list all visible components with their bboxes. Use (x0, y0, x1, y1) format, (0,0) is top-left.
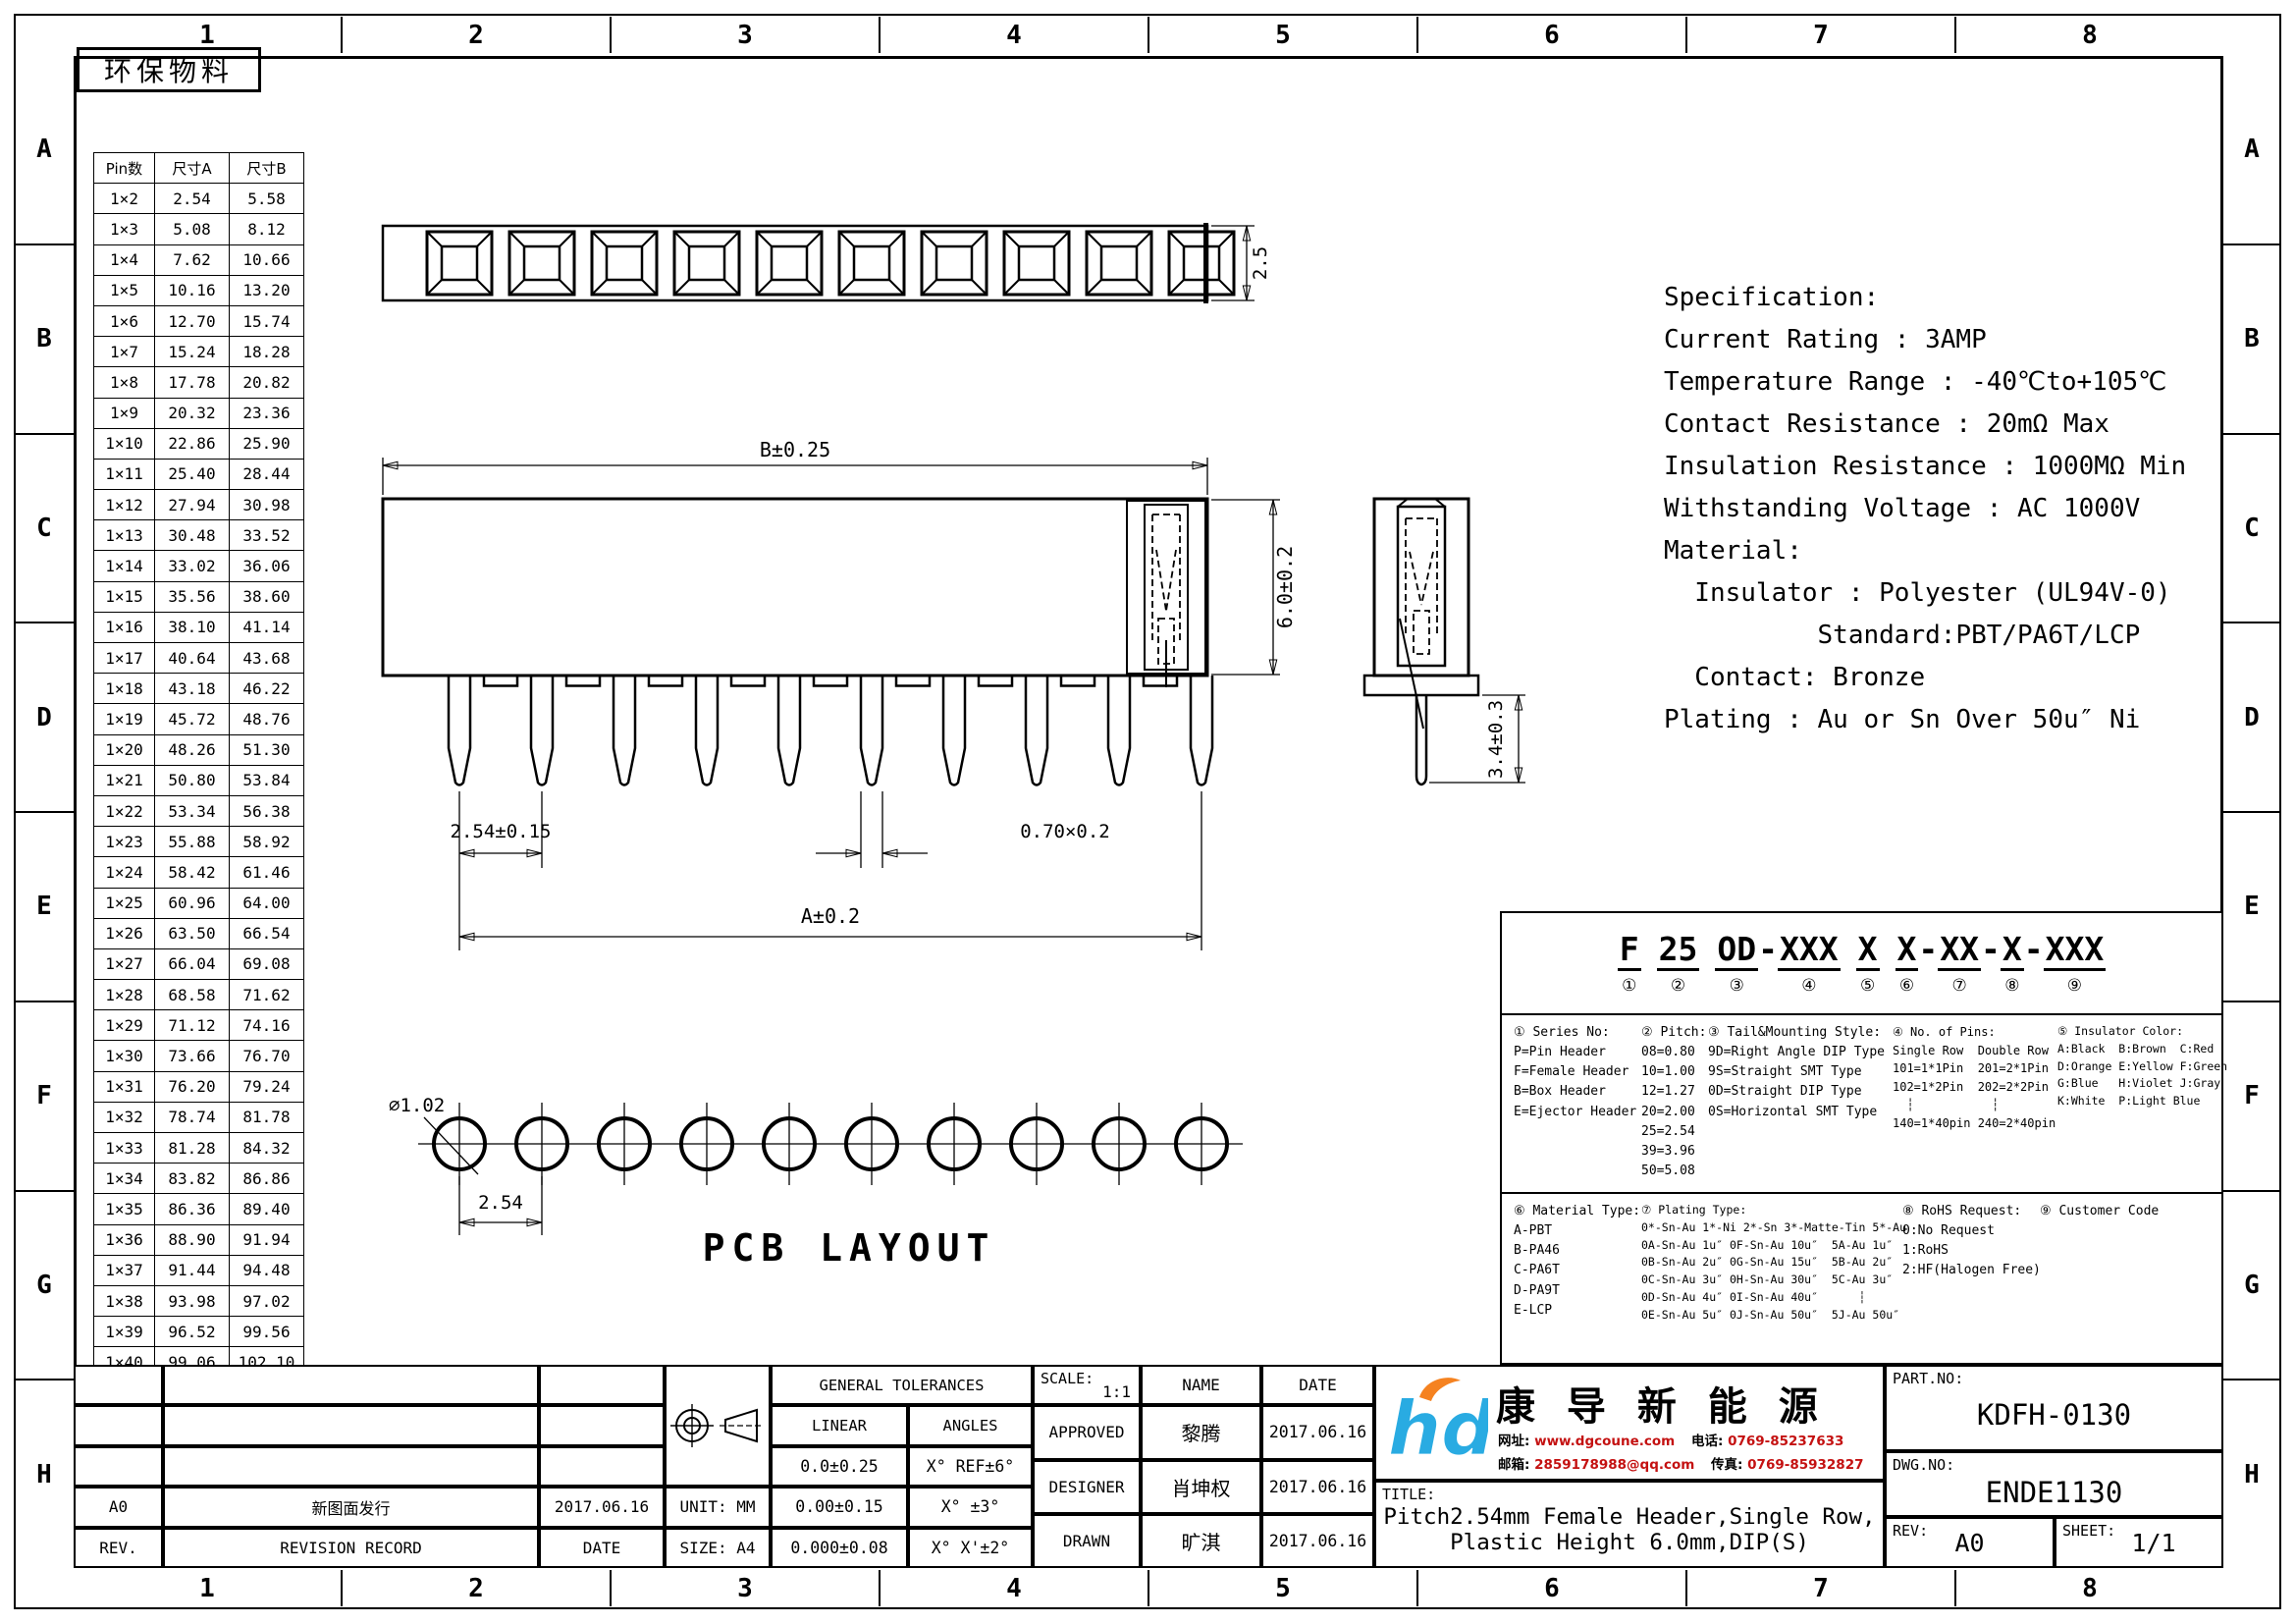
part-no-label: PART.NO: (1893, 1370, 1963, 1387)
pin-table-cell: 27.94 (155, 490, 230, 520)
pin-table-cell: 1×5 (94, 275, 155, 305)
pin-table-cell: 10.66 (230, 244, 304, 275)
pin-table-cell: 15.24 (155, 337, 230, 367)
part-code-segment-text: X (1856, 931, 1880, 971)
pin-table-row: 1×1330.4833.52 (94, 520, 304, 551)
company-logo-icon: hd (1386, 1372, 1488, 1476)
pin-table-cell: 36.06 (230, 551, 304, 581)
pin-table-row: 1×3176.2079.24 (94, 1071, 304, 1102)
grid-col-label: 2 (341, 17, 610, 53)
size-cell: SIZE: A4 (665, 1528, 771, 1568)
linear-header: LINEAR (771, 1405, 908, 1445)
email-label: 邮箱: (1498, 1457, 1529, 1473)
pin-table-cell: 35.56 (155, 581, 230, 612)
pin-table-cell: 93.98 (155, 1285, 230, 1316)
projection-symbol-cell (665, 1365, 771, 1487)
spec-line: Contact: Bronze (1664, 657, 2186, 699)
website-label: 网址: (1498, 1434, 1529, 1449)
fax-label: 传真: (1711, 1457, 1742, 1473)
tolerance-angle-value: X° REF±6° (908, 1446, 1033, 1487)
rev-label: REV: (1893, 1522, 1928, 1540)
pin-table-row: 1×920.3223.36 (94, 398, 304, 428)
pin-table-cell: 1×11 (94, 459, 155, 489)
pin-table-cell: 71.12 (155, 1010, 230, 1041)
pin-table-row: 1×1638.1041.14 (94, 612, 304, 642)
part-code-segment-text: X (1896, 931, 1919, 971)
spec-line: Insulator : Polyester (UL94V-0) (1664, 572, 2186, 615)
part-code-segment-text: 25 (1657, 931, 1700, 971)
pin-table-cell: 1×26 (94, 918, 155, 948)
pin-table-cell: 81.78 (230, 1102, 304, 1132)
pin-table-cell: 8.12 (230, 214, 304, 244)
grid-band-left: ABCDEFGH (15, 56, 74, 1568)
company-block: hd 康 导 新 能 源 网址: www.dgcoune.com 电话: 076… (1374, 1365, 1885, 1481)
part-code-segment-text: XXX (2044, 931, 2107, 971)
pin-table-cell: 81.28 (155, 1133, 230, 1164)
pin-table-row: 1×715.2418.28 (94, 337, 304, 367)
decode-divider-1 (1502, 1013, 2221, 1015)
revision-empty-cell (163, 1446, 539, 1487)
part-code-segment-index: ② (1671, 976, 1685, 996)
part-code-segment: XXX⑨ (2044, 931, 2107, 996)
pin-table-cell: 43.68 (230, 643, 304, 674)
pin-table-row: 1×1227.9430.98 (94, 490, 304, 520)
pin-table-cell: 58.42 (155, 857, 230, 888)
pin-table-cell: 33.02 (155, 551, 230, 581)
part-code-segment-text: F (1618, 931, 1641, 971)
pin-table-cell: 12.70 (155, 305, 230, 336)
pin-table-row: 1×3688.9091.94 (94, 1224, 304, 1255)
pin-table-cell: 45.72 (155, 704, 230, 734)
spec-line: Withstanding Voltage : AC 1000V (1664, 488, 2186, 530)
pin-table-cell: 20.32 (155, 398, 230, 428)
pin-table-cell: 1×18 (94, 674, 155, 704)
pin-table-cell: 1×25 (94, 888, 155, 918)
pin-table-cell: 56.38 (230, 795, 304, 826)
tolerance-linear-value: 0.00±0.15 (771, 1487, 908, 1527)
tolerance-linear-value: 0.0±0.25 (771, 1446, 908, 1487)
pin-table-cell: 50.80 (155, 765, 230, 795)
pin-table-cell: 1×37 (94, 1255, 155, 1285)
pin-table-cell: 30.98 (230, 490, 304, 520)
part-code-segment-text: X (2001, 931, 2024, 971)
revision-empty-cell (74, 1365, 163, 1405)
size-label: SIZE: A4 (667, 1530, 769, 1566)
pin-table-cell: 73.66 (155, 1041, 230, 1071)
part-code-segment-index: ④ (1801, 976, 1816, 996)
svg-text:hd: hd (1388, 1384, 1488, 1472)
revision-empty-cell (163, 1405, 539, 1445)
pin-table-row: 1×3278.7481.78 (94, 1102, 304, 1132)
scale-value: 1:1 (1102, 1382, 1131, 1401)
grid-row-label: A (15, 56, 74, 244)
part-code-separator: - (1918, 931, 1938, 968)
pin-table-cell: 30.48 (155, 520, 230, 551)
pin-table-cell: 28.44 (230, 459, 304, 489)
grid-row-label: G (15, 1190, 74, 1380)
pin-table-cell: 74.16 (230, 1010, 304, 1041)
grid-row-label: C (15, 433, 74, 623)
grid-col-label: 8 (1954, 1570, 2223, 1606)
specification-block: Specification:Current Rating : 3AMPTempe… (1664, 277, 2186, 741)
phone-label: 电话: (1691, 1434, 1723, 1449)
grid-row-label: F (15, 1001, 74, 1190)
spec-line: Current Rating : 3AMP (1664, 319, 2186, 361)
pin-table-row: 1×3791.4494.48 (94, 1255, 304, 1285)
spec-line: Standard:PBT/PA6T/LCP (1664, 615, 2186, 657)
pin-table-row: 1×1125.4028.44 (94, 459, 304, 489)
pin-table-cell: 1×21 (94, 765, 155, 795)
approval-role: APPROVED (1033, 1405, 1141, 1459)
pin-table-row: 1×3893.9897.02 (94, 1285, 304, 1316)
grid-row-label: E (2222, 811, 2281, 1001)
pin-table-cell: 1×20 (94, 734, 155, 765)
pin-table-cell: 88.90 (155, 1224, 230, 1255)
decode-section-pitch: ② Pitch: 08=0.80 10=1.00 12=1.27 20=2.00… (1641, 1023, 1706, 1181)
pin-table-cell: 40.64 (155, 643, 230, 674)
part-code-segment: X⑥ (1896, 931, 1919, 996)
pin-table-cell: 10.16 (155, 275, 230, 305)
pin-table-header-dim-b: 尺寸B (230, 153, 304, 184)
pin-table-cell: 17.78 (155, 367, 230, 398)
pin-table-cell: 64.00 (230, 888, 304, 918)
pin-table-cell: 1×3 (94, 214, 155, 244)
pin-table-row: 1×22.545.58 (94, 184, 304, 214)
pin-table-cell: 1×15 (94, 581, 155, 612)
pin-table-cell: 1×10 (94, 428, 155, 459)
part-number-decode-panel: F①25②OD③-XXX④X⑤X⑥-XX⑦-X⑧-XXX⑨ ① Series N… (1500, 911, 2223, 1365)
pin-table-cell: 63.50 (155, 918, 230, 948)
grid-row-label: B (2222, 244, 2281, 433)
part-code-segment-index: ⑨ (2067, 976, 2082, 996)
grid-col-label: 8 (1954, 17, 2223, 53)
pin-table-row: 1×1022.8625.90 (94, 428, 304, 459)
pin-table-row: 1×2766.0469.08 (94, 948, 304, 979)
pin-table-cell: 1×24 (94, 857, 155, 888)
grid-row-label: C (2222, 433, 2281, 623)
pin-table-row: 1×3996.5299.56 (94, 1317, 304, 1347)
angles-header: ANGLES (908, 1405, 1033, 1445)
part-code-segment: XXX④ (1778, 931, 1841, 996)
part-code-segment-index: ⑦ (1952, 976, 1967, 996)
revision-empty-cell (539, 1365, 665, 1405)
pin-table-cell: 38.60 (230, 581, 304, 612)
pin-table-row: 1×1740.6443.68 (94, 643, 304, 674)
decode-section-series: ① Series No: P=Pin Header F=Female Heade… (1514, 1023, 1636, 1122)
pin-table-header-row: Pin数 尺寸A 尺寸B (94, 153, 304, 184)
pin-table-cell: 25.40 (155, 459, 230, 489)
pin-table-cell: 1×30 (94, 1041, 155, 1071)
grid-row-label: D (2222, 622, 2281, 811)
pin-table-cell: 55.88 (155, 827, 230, 857)
pin-table-cell: 41.14 (230, 612, 304, 642)
decode-section-color: ⑤ Insulator Color: A:Black B:Brown C:Red… (2057, 1023, 2227, 1110)
pin-table-cell: 1×4 (94, 244, 155, 275)
grid-row-label: H (2222, 1379, 2281, 1568)
grid-band-bottom: 12345678 (74, 1570, 2223, 1606)
company-contact-line-1: 网址: www.dgcoune.com 电话: 0769-85237633 (1498, 1430, 1855, 1449)
sheet-label: SHEET: (2062, 1522, 2115, 1540)
pin-table-cell: 99.56 (230, 1317, 304, 1347)
pin-table-cell: 1×6 (94, 305, 155, 336)
pin-table-cell: 1×12 (94, 490, 155, 520)
drawing-title-line-2: Plastic Height 6.0mm,DIP(S) (1376, 1530, 1883, 1555)
pin-table-row: 1×1945.7248.76 (94, 704, 304, 734)
pin-table-cell: 38.10 (155, 612, 230, 642)
revision-empty-cell (539, 1446, 665, 1487)
rev-cell: REV: A0 (1885, 1517, 2055, 1568)
grid-band-top: 12345678 (74, 17, 2223, 53)
pin-table-row: 1×3586.3689.40 (94, 1194, 304, 1224)
decode-section-pins: ④ No. of Pins: Single Row Double Row 101… (1893, 1023, 2056, 1133)
approval-date: 2017.06.16 (1261, 1405, 1374, 1459)
pin-table-header-dim-a: 尺寸A (155, 153, 230, 184)
decode-section-rohs: ⑧ RoHS Request: 0:No Request 1:RoHS 2:HF… (1902, 1202, 2041, 1281)
pin-table-cell: 1×17 (94, 643, 155, 674)
part-code-segment-index: ⑧ (2004, 976, 2019, 996)
pin-table-cell: 48.76 (230, 704, 304, 734)
eco-material-stamp: 环保物料 (77, 47, 261, 92)
decode-section-tail: ③ Tail&Mounting Style: 9D=Right Angle DI… (1708, 1023, 1885, 1122)
tolerance-linear-value: 0.000±0.08 (771, 1528, 908, 1568)
pin-table-cell: 91.44 (155, 1255, 230, 1285)
name-header: NAME (1141, 1365, 1261, 1405)
grid-col-label: 4 (879, 1570, 1148, 1606)
pin-table-cell: 83.82 (155, 1164, 230, 1194)
drawing-title-block: TITLE: Pitch2.54mm Female Header,Single … (1374, 1481, 1885, 1568)
pin-table-cell: 1×29 (94, 1010, 155, 1041)
pin-table-cell: 91.94 (230, 1224, 304, 1255)
pin-table-cell: 68.58 (155, 980, 230, 1010)
pin-table-row: 1×1535.5638.60 (94, 581, 304, 612)
grid-col-label: 5 (1148, 1570, 1416, 1606)
title-label: TITLE: (1382, 1486, 1435, 1503)
revision-entry-cell: 2017.06.16 (539, 1487, 665, 1527)
pin-table-cell: 33.52 (230, 520, 304, 551)
pin-table-row: 1×47.6210.66 (94, 244, 304, 275)
approval-date: 2017.06.16 (1261, 1514, 1374, 1568)
part-code-separator: - (2024, 931, 2044, 968)
pin-table-row: 1×2048.2651.30 (94, 734, 304, 765)
part-code-segment-text: XX (1938, 931, 1981, 971)
grid-col-label: 6 (1416, 1570, 1685, 1606)
pin-table-cell: 1×36 (94, 1224, 155, 1255)
grid-col-label: 2 (341, 1570, 610, 1606)
part-code-segment-index: ⑤ (1860, 976, 1875, 996)
grid-col-label: 1 (74, 1570, 341, 1606)
grid-col-label: 6 (1416, 17, 1685, 53)
pin-table-cell: 46.22 (230, 674, 304, 704)
pin-table-row: 1×2971.1274.16 (94, 1010, 304, 1041)
pin-table-row: 1×510.1613.20 (94, 275, 304, 305)
pin-table-cell: 60.96 (155, 888, 230, 918)
spec-line: Contact Resistance : 20mΩ Max (1664, 404, 2186, 446)
grid-row-label: D (15, 622, 74, 811)
grid-row-label: F (2222, 1001, 2281, 1190)
pin-table-cell: 78.74 (155, 1102, 230, 1132)
company-name: 康 导 新 能 源 (1496, 1375, 1827, 1432)
pin-table-cell: 22.86 (155, 428, 230, 459)
pin-table-row: 1×1843.1846.22 (94, 674, 304, 704)
revision-footer-cell: DATE (539, 1528, 665, 1568)
pin-table-row: 1×817.7820.82 (94, 367, 304, 398)
grid-col-label: 5 (1148, 17, 1416, 53)
date-header: DATE (1261, 1365, 1374, 1405)
tolerance-angle-value: X° ±3° (908, 1487, 1033, 1527)
pin-dimension-table: Pin数 尺寸A 尺寸B 1×22.545.581×35.088.121×47.… (93, 152, 304, 1379)
part-code-segment: 25② (1657, 931, 1700, 996)
pin-table-row: 1×2253.3456.38 (94, 795, 304, 826)
pin-table-cell: 18.28 (230, 337, 304, 367)
dwg-no-cell: DWG.NO: ENDE1130 (1885, 1451, 2223, 1517)
approval-name: 旷淇 (1141, 1514, 1261, 1568)
revision-empty-cell (163, 1365, 539, 1405)
unit-cell: UNIT: MM (665, 1487, 771, 1527)
part-code-segment: F① (1618, 931, 1641, 996)
part-code-segment: XX⑦ (1938, 931, 1981, 996)
pin-table-cell: 43.18 (155, 674, 230, 704)
pin-table-cell: 1×14 (94, 551, 155, 581)
spec-line: Insulation Resistance : 1000MΩ Min (1664, 446, 2186, 488)
pin-table-cell: 84.32 (230, 1133, 304, 1164)
tolerance-angle-value: X° X'±2° (908, 1528, 1033, 1568)
company-contact-line-2: 邮箱: 2859178988@qq.com 传真: 0769-85932827 (1498, 1453, 1875, 1473)
email-value: 2859178988@qq.com (1534, 1457, 1694, 1473)
pin-table-cell: 1×34 (94, 1164, 155, 1194)
pin-table-cell: 1×27 (94, 948, 155, 979)
pin-table-cell: 1×22 (94, 795, 155, 826)
part-code-segment-index: ⑥ (1899, 976, 1914, 996)
revision-footer-cell: REV. (74, 1528, 163, 1568)
part-code-separator: - (1981, 931, 2001, 968)
part-code-segment: X⑤ (1856, 931, 1880, 996)
spec-line: Temperature Range : -40℃to+105℃ (1664, 361, 2186, 404)
pin-table-row: 1×612.7015.74 (94, 305, 304, 336)
fax-value: 0769-85932827 (1747, 1457, 1863, 1473)
pin-table-row: 1×2663.5066.54 (94, 918, 304, 948)
part-code-segment-text: XXX (1778, 931, 1841, 971)
general-tolerances-header: GENERAL TOLERANCES (771, 1365, 1033, 1405)
website-value: www.dgcoune.com (1534, 1434, 1675, 1449)
pin-table-cell: 1×2 (94, 184, 155, 214)
pin-table-cell: 1×7 (94, 337, 155, 367)
scale-label: SCALE: (1041, 1370, 1094, 1387)
decode-section-customer: ⑨ Customer Code (2040, 1202, 2159, 1221)
pin-table-cell: 13.20 (230, 275, 304, 305)
pin-table-cell: 97.02 (230, 1285, 304, 1316)
pin-table-cell: 1×23 (94, 827, 155, 857)
approval-role: DRAWN (1033, 1514, 1141, 1568)
pin-table-cell: 76.70 (230, 1041, 304, 1071)
part-code-segment-index: ① (1622, 976, 1636, 996)
pin-table-header-pins: Pin数 (94, 153, 155, 184)
pin-table-cell: 23.36 (230, 398, 304, 428)
grid-col-label: 4 (879, 17, 1148, 53)
grid-row-label: B (15, 244, 74, 433)
decode-section-plating: ⑦ Plating Type: 0*-Sn-Au 1*-Ni 2*-Sn 3*-… (1641, 1202, 1906, 1325)
grid-row-label: E (15, 811, 74, 1001)
pin-table-cell: 25.90 (230, 428, 304, 459)
decode-section-material: ⑥ Material Type: A-PBT B-PA46 C-PA6T D-P… (1514, 1202, 1640, 1321)
pin-table-cell: 1×32 (94, 1102, 155, 1132)
pin-table-cell: 61.46 (230, 857, 304, 888)
pin-table-row: 1×35.088.12 (94, 214, 304, 244)
sheet-cell: SHEET: 1/1 (2055, 1517, 2223, 1568)
decode-divider-2 (1502, 1192, 2221, 1194)
pin-table-cell: 94.48 (230, 1255, 304, 1285)
pin-table-cell: 1×39 (94, 1317, 155, 1347)
approval-role: DESIGNER (1033, 1460, 1141, 1514)
pin-table-cell: 20.82 (230, 367, 304, 398)
pin-table-cell: 66.54 (230, 918, 304, 948)
pin-table-cell: 1×35 (94, 1194, 155, 1224)
grid-row-label: H (15, 1379, 74, 1568)
pin-table-cell: 53.84 (230, 765, 304, 795)
projection-symbol-icon (670, 1404, 765, 1447)
part-code-segment: OD③ (1715, 931, 1758, 996)
grid-row-label: G (2222, 1190, 2281, 1380)
pin-table-row: 1×2868.5871.62 (94, 980, 304, 1010)
pin-table-cell: 1×33 (94, 1133, 155, 1164)
part-number-code: F①25②OD③-XXX④X⑤X⑥-XX⑦-X⑧-XXX⑨ (1502, 913, 2221, 1013)
pin-table-cell: 58.92 (230, 827, 304, 857)
part-code-segment-index: ③ (1730, 976, 1744, 996)
pin-table-cell: 53.34 (155, 795, 230, 826)
pin-table-cell: 96.52 (155, 1317, 230, 1347)
pin-table-row: 1×1433.0236.06 (94, 551, 304, 581)
pin-table-cell: 89.40 (230, 1194, 304, 1224)
pin-table-row: 1×2560.9664.00 (94, 888, 304, 918)
revision-empty-cell (539, 1405, 665, 1445)
engineering-drawing-sheet: 12345678 12345678 ABCDEFGH ABCDEFGH 环保物料… (0, 0, 2296, 1624)
drawing-title-line-1: Pitch2.54mm Female Header,Single Row, (1376, 1504, 1883, 1530)
grid-col-label: 7 (1685, 1570, 1954, 1606)
scale-cell: SCALE: 1:1 (1033, 1365, 1141, 1405)
part-code-separator: - (1758, 931, 1778, 968)
approval-name: 肖坤权 (1141, 1460, 1261, 1514)
grid-col-label: 7 (1685, 17, 1954, 53)
pin-table-cell: 1×9 (94, 398, 155, 428)
dwg-no-label: DWG.NO: (1893, 1456, 1954, 1474)
pin-table-cell: 66.04 (155, 948, 230, 979)
pin-table-cell: 76.20 (155, 1071, 230, 1102)
revision-empty-cell (74, 1446, 163, 1487)
pin-table-cell: 1×28 (94, 980, 155, 1010)
revision-entry-cell: A0 (74, 1487, 163, 1527)
phone-value: 0769-85237633 (1728, 1434, 1843, 1449)
pin-table-cell: 51.30 (230, 734, 304, 765)
pin-table-cell: 7.62 (155, 244, 230, 275)
grid-row-label: A (2222, 56, 2281, 244)
unit-label: UNIT: MM (667, 1489, 769, 1525)
pin-table-row: 1×2458.4261.46 (94, 857, 304, 888)
pin-table-cell: 1×38 (94, 1285, 155, 1316)
grid-col-label: 3 (610, 17, 879, 53)
revision-entry-cell: 新图面发行 (163, 1487, 539, 1527)
pin-table-cell: 86.86 (230, 1164, 304, 1194)
pin-table-cell: 1×13 (94, 520, 155, 551)
part-code-segment-text: OD (1715, 931, 1758, 971)
pin-table-row: 1×3483.8286.86 (94, 1164, 304, 1194)
pin-table-cell: 79.24 (230, 1071, 304, 1102)
pin-table-cell: 1×8 (94, 367, 155, 398)
pin-table-cell: 71.62 (230, 980, 304, 1010)
pin-table-cell: 15.74 (230, 305, 304, 336)
pin-table-row: 1×2150.8053.84 (94, 765, 304, 795)
revision-footer-cell: REVISION RECORD (163, 1528, 539, 1568)
pin-table-cell: 86.36 (155, 1194, 230, 1224)
approval-name: 黎腾 (1141, 1405, 1261, 1459)
